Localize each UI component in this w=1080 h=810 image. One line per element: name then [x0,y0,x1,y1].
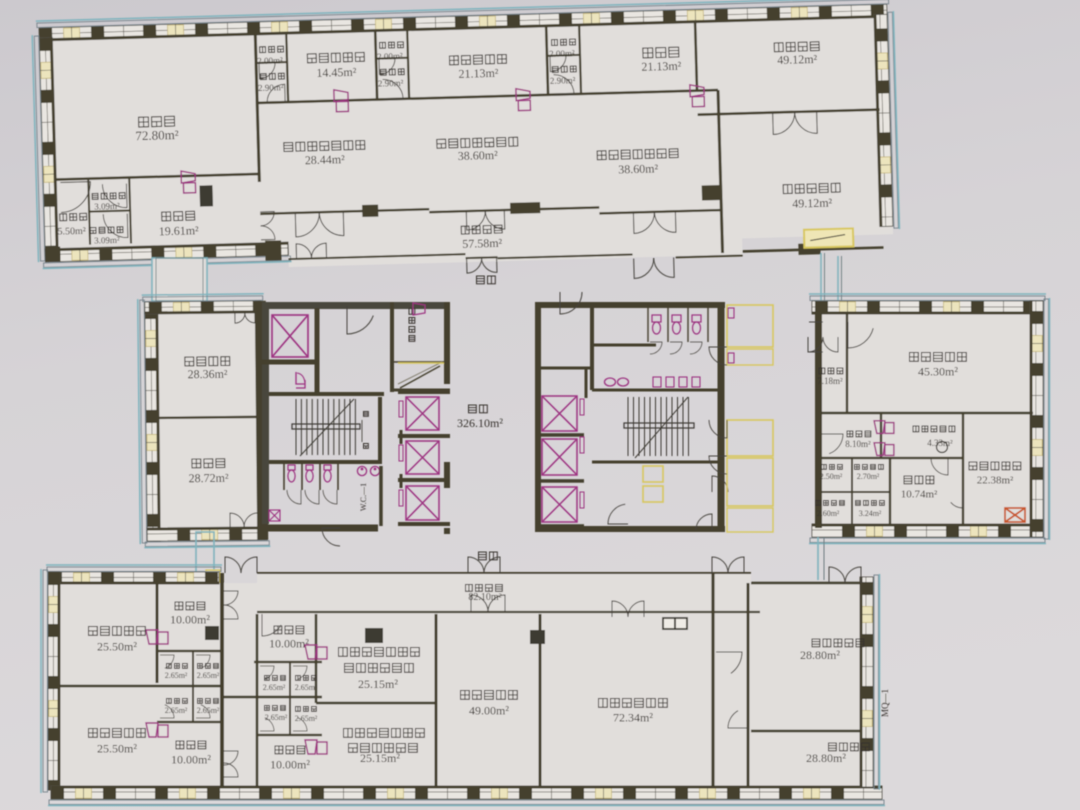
svg-text:25.15m²: 25.15m² [360,751,400,765]
svg-text:82.10m²: 82.10m² [468,592,501,603]
svg-text:28.44m²: 28.44m² [305,152,346,167]
svg-text:25.50m²: 25.50m² [97,640,137,654]
svg-text:45.30m²: 45.30m² [918,365,958,379]
svg-text:28.80m²: 28.80m² [800,648,840,662]
svg-text:49.12m²: 49.12m² [777,52,818,67]
svg-text:19.61m²: 19.61m² [159,223,200,238]
svg-text:2.90m²: 2.90m² [550,75,576,86]
svg-text:2.65m²: 2.65m² [165,671,188,680]
svg-text:326.10m²: 326.10m² [457,416,503,430]
svg-text:2.65m²: 2.65m² [165,706,188,715]
svg-text:2.65m²: 2.65m² [197,706,220,715]
svg-text:10.00m²: 10.00m² [170,613,210,627]
svg-text:10.00m²: 10.00m² [171,753,211,767]
svg-text:49.12m²: 49.12m² [792,196,833,211]
svg-text:2.70m²: 2.70m² [857,472,880,481]
svg-text:3.09m²: 3.09m² [94,235,120,246]
svg-text:4.33m²: 4.33m² [927,438,953,448]
svg-text:2.65m²: 2.65m² [265,713,288,722]
svg-text:2.65m²: 2.65m² [263,683,286,692]
svg-text:2.50m²: 2.50m² [820,472,843,481]
svg-text:W.C.—1: W.C.—1 [359,483,368,511]
svg-text:2.65m²: 2.65m² [197,671,220,680]
svg-text:49.00m²: 49.00m² [469,704,509,718]
svg-text:10.74m²: 10.74m² [901,488,938,500]
svg-text:25.15m²: 25.15m² [358,677,398,691]
svg-text:2.65m²: 2.65m² [295,683,318,692]
svg-text:2.90m²: 2.90m² [258,82,284,93]
svg-text:28.72m²: 28.72m² [189,471,229,485]
svg-text:5.50m²: 5.50m² [57,226,86,238]
svg-text:72.34m²: 72.34m² [613,711,653,725]
svg-text:10.00m²: 10.00m² [269,637,309,651]
svg-text:2.60m²: 2.60m² [817,509,840,518]
svg-text:22.38m²: 22.38m² [977,474,1014,486]
svg-text:14.45m²: 14.45m² [316,65,357,80]
svg-text:7.18m²: 7.18m² [817,376,843,386]
svg-text:28.80m²: 28.80m² [806,751,846,765]
svg-text:72.80m²: 72.80m² [135,127,179,143]
svg-text:3.24m²: 3.24m² [859,509,882,518]
svg-text:2.90m²: 2.90m² [378,78,404,89]
svg-text:10.00m²: 10.00m² [270,758,310,772]
svg-text:3.09m²: 3.09m² [94,201,120,212]
svg-text:21.13m²: 21.13m² [458,66,499,81]
svg-text:38.60m²: 38.60m² [458,148,499,163]
svg-text:28.36m²: 28.36m² [187,367,227,381]
svg-text:8.10m²: 8.10m² [845,439,871,449]
svg-text:21.13m²: 21.13m² [641,59,682,74]
svg-text:MQ—1: MQ—1 [880,689,890,717]
svg-text:2.00m²: 2.00m² [549,48,575,59]
svg-text:2.65m²: 2.65m² [295,714,318,723]
svg-text:2.00m²: 2.00m² [257,55,283,66]
svg-text:38.60m²: 38.60m² [618,161,659,176]
svg-text:2.00m²: 2.00m² [377,51,403,62]
svg-text:57.58m²: 57.58m² [462,236,503,251]
svg-text:25.50m²: 25.50m² [97,742,137,756]
